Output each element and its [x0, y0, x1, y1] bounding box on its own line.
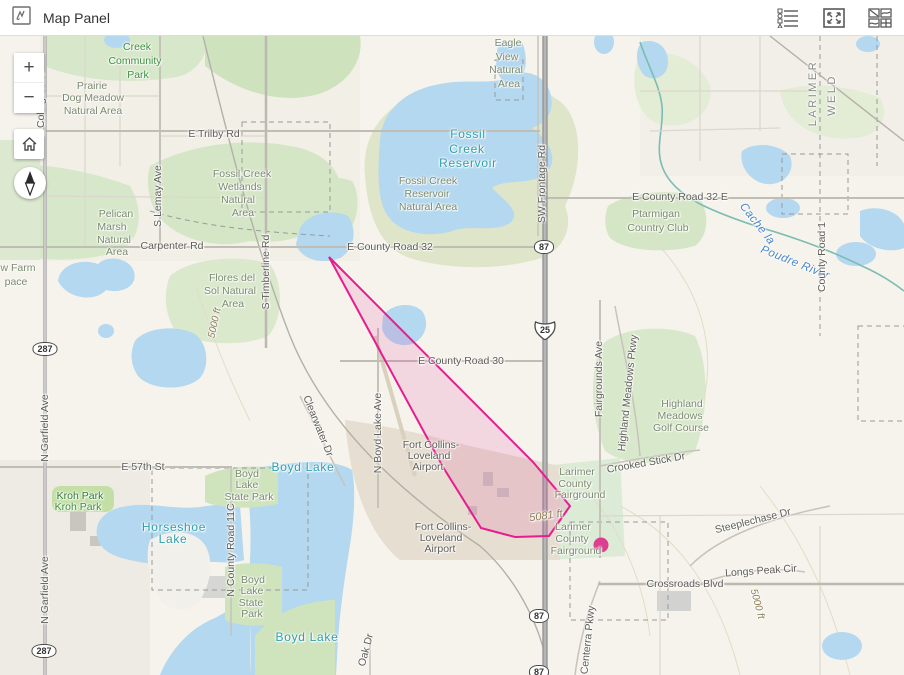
svg-text:25: 25: [540, 325, 550, 335]
us-route-shield: 87: [534, 237, 554, 255]
us-route-shield: 87: [529, 606, 549, 624]
legend-icon[interactable]: [776, 6, 800, 30]
interstate-shield: 25: [534, 319, 557, 345]
panel-header: Map Panel: [0, 0, 904, 36]
zoom-in-button[interactable]: +: [14, 53, 44, 83]
expand-icon[interactable]: [822, 6, 846, 30]
home-icon: [21, 136, 38, 152]
basemap-gallery-icon[interactable]: [868, 6, 892, 30]
home-button[interactable]: [14, 129, 44, 159]
us-route-shield: 287: [31, 641, 56, 659]
map-sketch-icon: [12, 6, 31, 30]
map-view[interactable]: CreekCommunityParkPrairieDog MeadowNatur…: [0, 36, 904, 675]
compass-needle-icon: [18, 170, 42, 196]
zoom-control: + −: [14, 53, 44, 113]
page-title: Map Panel: [43, 10, 110, 26]
zoom-out-button[interactable]: −: [14, 83, 44, 113]
us-route-shield: 87: [529, 662, 549, 675]
us-route-shield: 287: [32, 339, 57, 357]
map-panel-app: Map Panel: [0, 0, 904, 675]
compass-button[interactable]: [14, 167, 46, 199]
route-shields-layer: 28728787878725: [0, 36, 904, 675]
